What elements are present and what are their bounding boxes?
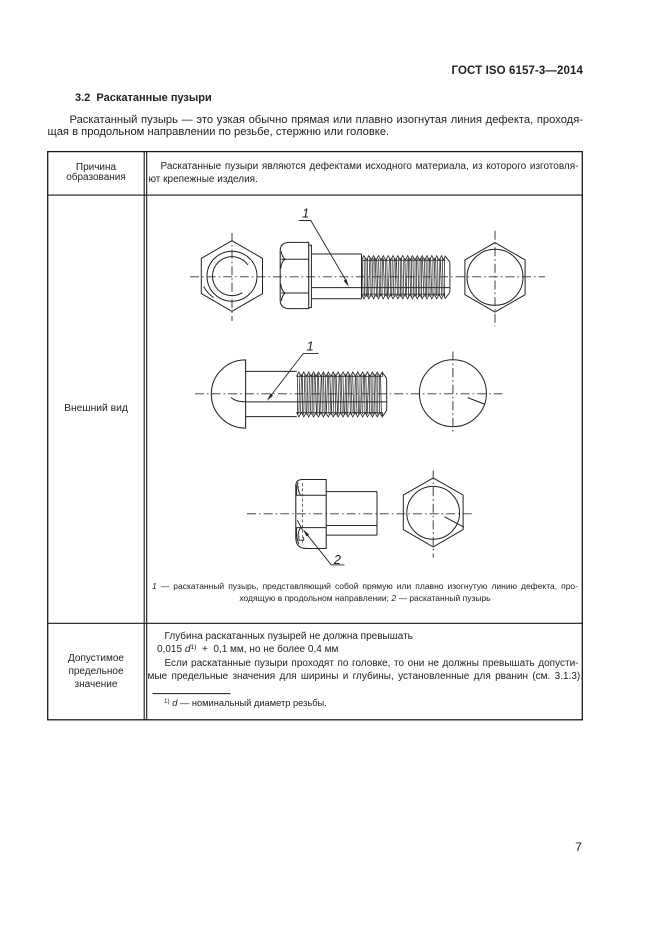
svg-text:2: 2 [333,552,342,567]
svg-text:1: 1 [307,339,314,354]
svg-text:1: 1 [302,206,309,221]
